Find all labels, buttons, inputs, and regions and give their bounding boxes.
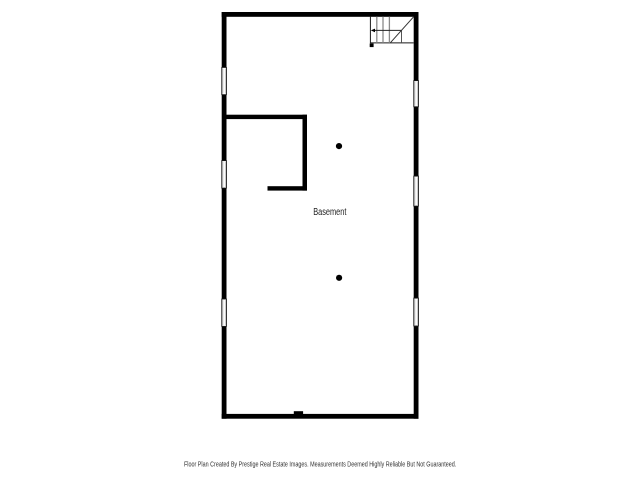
svg-text:Floor Plan Created By Prestige: Floor Plan Created By Prestige Real Esta… bbox=[184, 459, 456, 468]
svg-text:Basement: Basement bbox=[313, 207, 346, 218]
